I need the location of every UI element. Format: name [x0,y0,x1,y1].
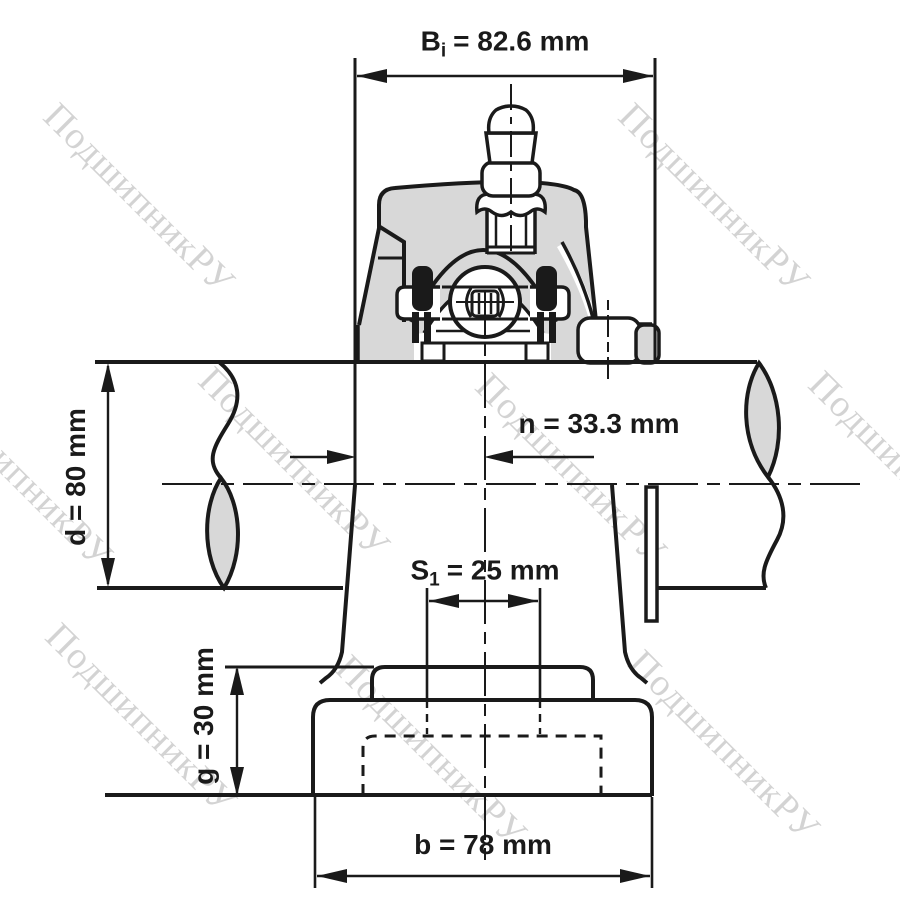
dimension-value: = 82.6 mm [453,26,589,57]
dimension-value: n = 33.3 mm [518,408,679,439]
dimension-d [101,363,115,587]
slinger-bar [537,312,544,343]
seal-right [536,266,557,311]
dimension-value: d = 80 mm [60,408,91,546]
dimension-label-bi: Bi= 82.6 mm [421,26,590,63]
dimension-symbol: S [410,555,429,586]
seal-left [412,266,433,311]
dimension-n [290,450,594,464]
shaft-break-lens-left [207,478,238,588]
dimension-symbol: B [421,26,441,57]
pillow-block-bearing-drawing [0,0,900,900]
bolt-recess-hidden [363,736,601,795]
shaft-break-lens-right [746,363,779,477]
slinger-bar [549,312,556,343]
housing-rear-lug [646,487,657,621]
dimension-label-n: n = 33.3 mm [518,408,679,440]
shaft-break-left [213,362,238,478]
dimension-value: = 25 mm [447,555,560,586]
dimension-label-s1: S1= 25 mm [410,555,559,592]
dimension-label-d: d = 80 mm [60,408,92,546]
centerlines [162,84,860,866]
dimension-value: b = 78 mm [414,829,552,860]
pillar-edge-right [612,485,647,683]
dimension-g [225,666,374,796]
dimension-value: g = 30 mm [188,647,219,785]
shaft-break-right [763,477,783,588]
pillar-edge-left [320,485,355,683]
dimension-label-g: g = 30 mm [188,647,220,785]
technical-drawing-page: ПодшипникРУ ПодшипникРУ ПодшипникРУ Подш… [0,0,900,900]
dimension-s1 [427,588,540,700]
inner-ring-foot-left [422,343,444,361]
slinger-bar [424,312,431,343]
set-screw [578,318,659,363]
dimension-subscript: i [441,41,446,62]
base-boss [372,667,593,701]
dimension-label-b: b = 78 mm [414,829,552,861]
dimension-subscript: 1 [429,570,440,591]
inner-ring-foot-right [526,343,548,361]
slinger-bar [412,312,419,343]
